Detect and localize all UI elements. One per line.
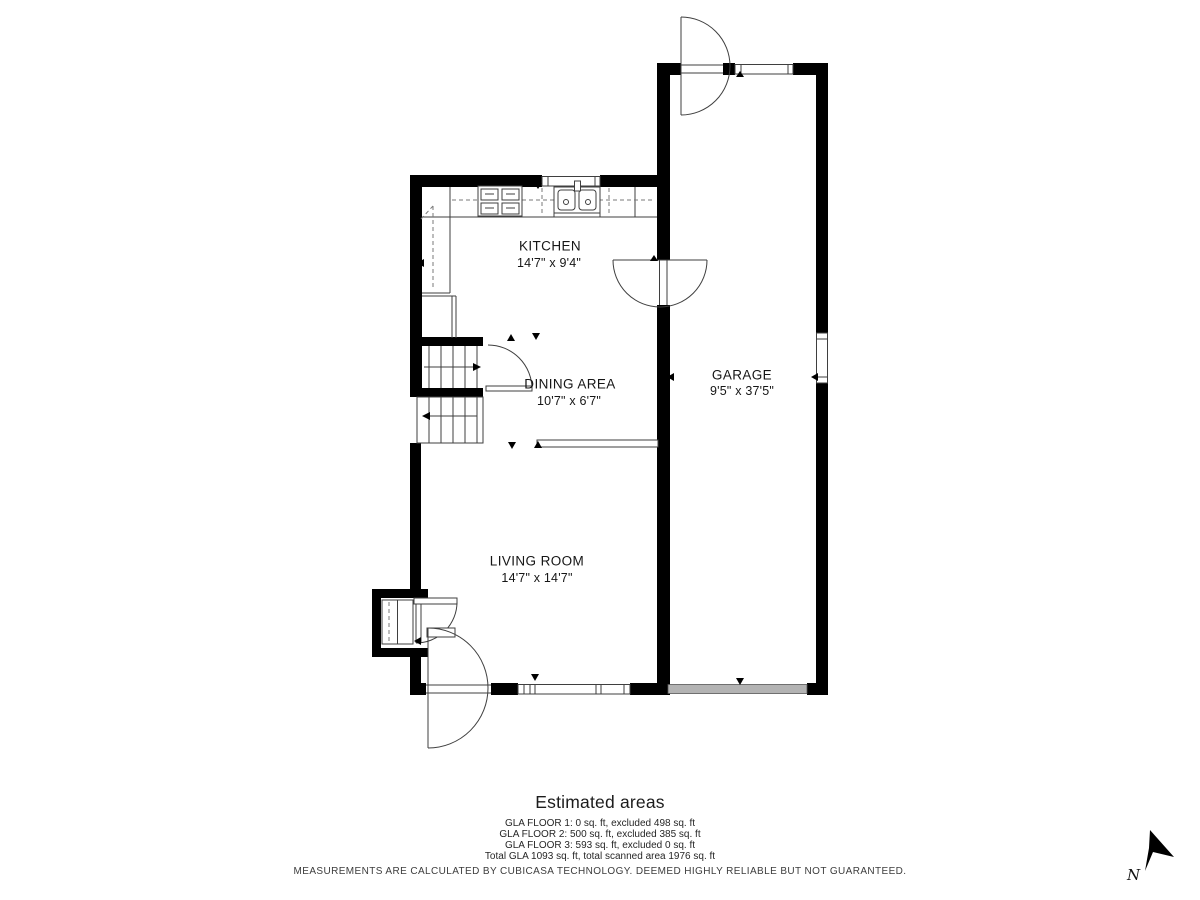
- garage-entry-door-icon: [681, 17, 730, 115]
- living-room-window-icon: [518, 685, 630, 695]
- room-dims-kitchen: 14'7" x 9'4": [517, 256, 581, 270]
- room-label-garage: GARAGE: [712, 368, 772, 383]
- kitchen-window-icon: [542, 177, 600, 187]
- room-dims-garage: 9'5" x 37'5": [710, 384, 774, 398]
- floor-plan-drawing: [0, 0, 1200, 900]
- room-label-living-room: LIVING ROOM: [490, 554, 584, 569]
- gla-floor-2: GLA FLOOR 2: 500 sq. ft, excluded 385 sq…: [485, 829, 715, 840]
- room-label-dining-area: DINING AREA: [524, 377, 615, 392]
- kitchen-garage-door-icon: [613, 260, 707, 307]
- room-label-kitchen: KITCHEN: [519, 239, 581, 254]
- north-label: N: [1127, 866, 1140, 884]
- garage-door-icon: [668, 685, 807, 694]
- garage-side-window-icon: [817, 333, 828, 383]
- gla-floor-3: GLA FLOOR 3: 593 sq. ft, excluded 0 sq. …: [485, 840, 715, 851]
- north-arrow-icon: [1145, 830, 1174, 871]
- closet-sliding-door-icon: [382, 600, 413, 644]
- disclaimer-text: MEASUREMENTS ARE CALCULATED BY CUBICASA …: [294, 866, 907, 877]
- room-dims-dining-area: 10'7" x 6'7": [537, 394, 601, 408]
- room-dims-living-room: 14'7" x 14'7": [501, 571, 572, 585]
- gla-floor-1: GLA FLOOR 1: 0 sq. ft, excluded 498 sq. …: [485, 818, 715, 829]
- stairs: [417, 296, 483, 443]
- half-wall: [537, 440, 658, 447]
- front-door-icon: [426, 628, 491, 748]
- estimated-areas-block: Estimated areas GLA FLOOR 1: 0 sq. ft, e…: [485, 792, 715, 862]
- garage-top-window-icon: [735, 65, 793, 75]
- gla-total: Total GLA 1093 sq. ft, total scanned are…: [485, 851, 715, 862]
- floor-plan-page: KITCHEN 14'7" x 9'4" DINING AREA 10'7" x…: [0, 0, 1200, 900]
- estimated-areas-title: Estimated areas: [485, 792, 715, 813]
- stove-icon: [478, 186, 522, 216]
